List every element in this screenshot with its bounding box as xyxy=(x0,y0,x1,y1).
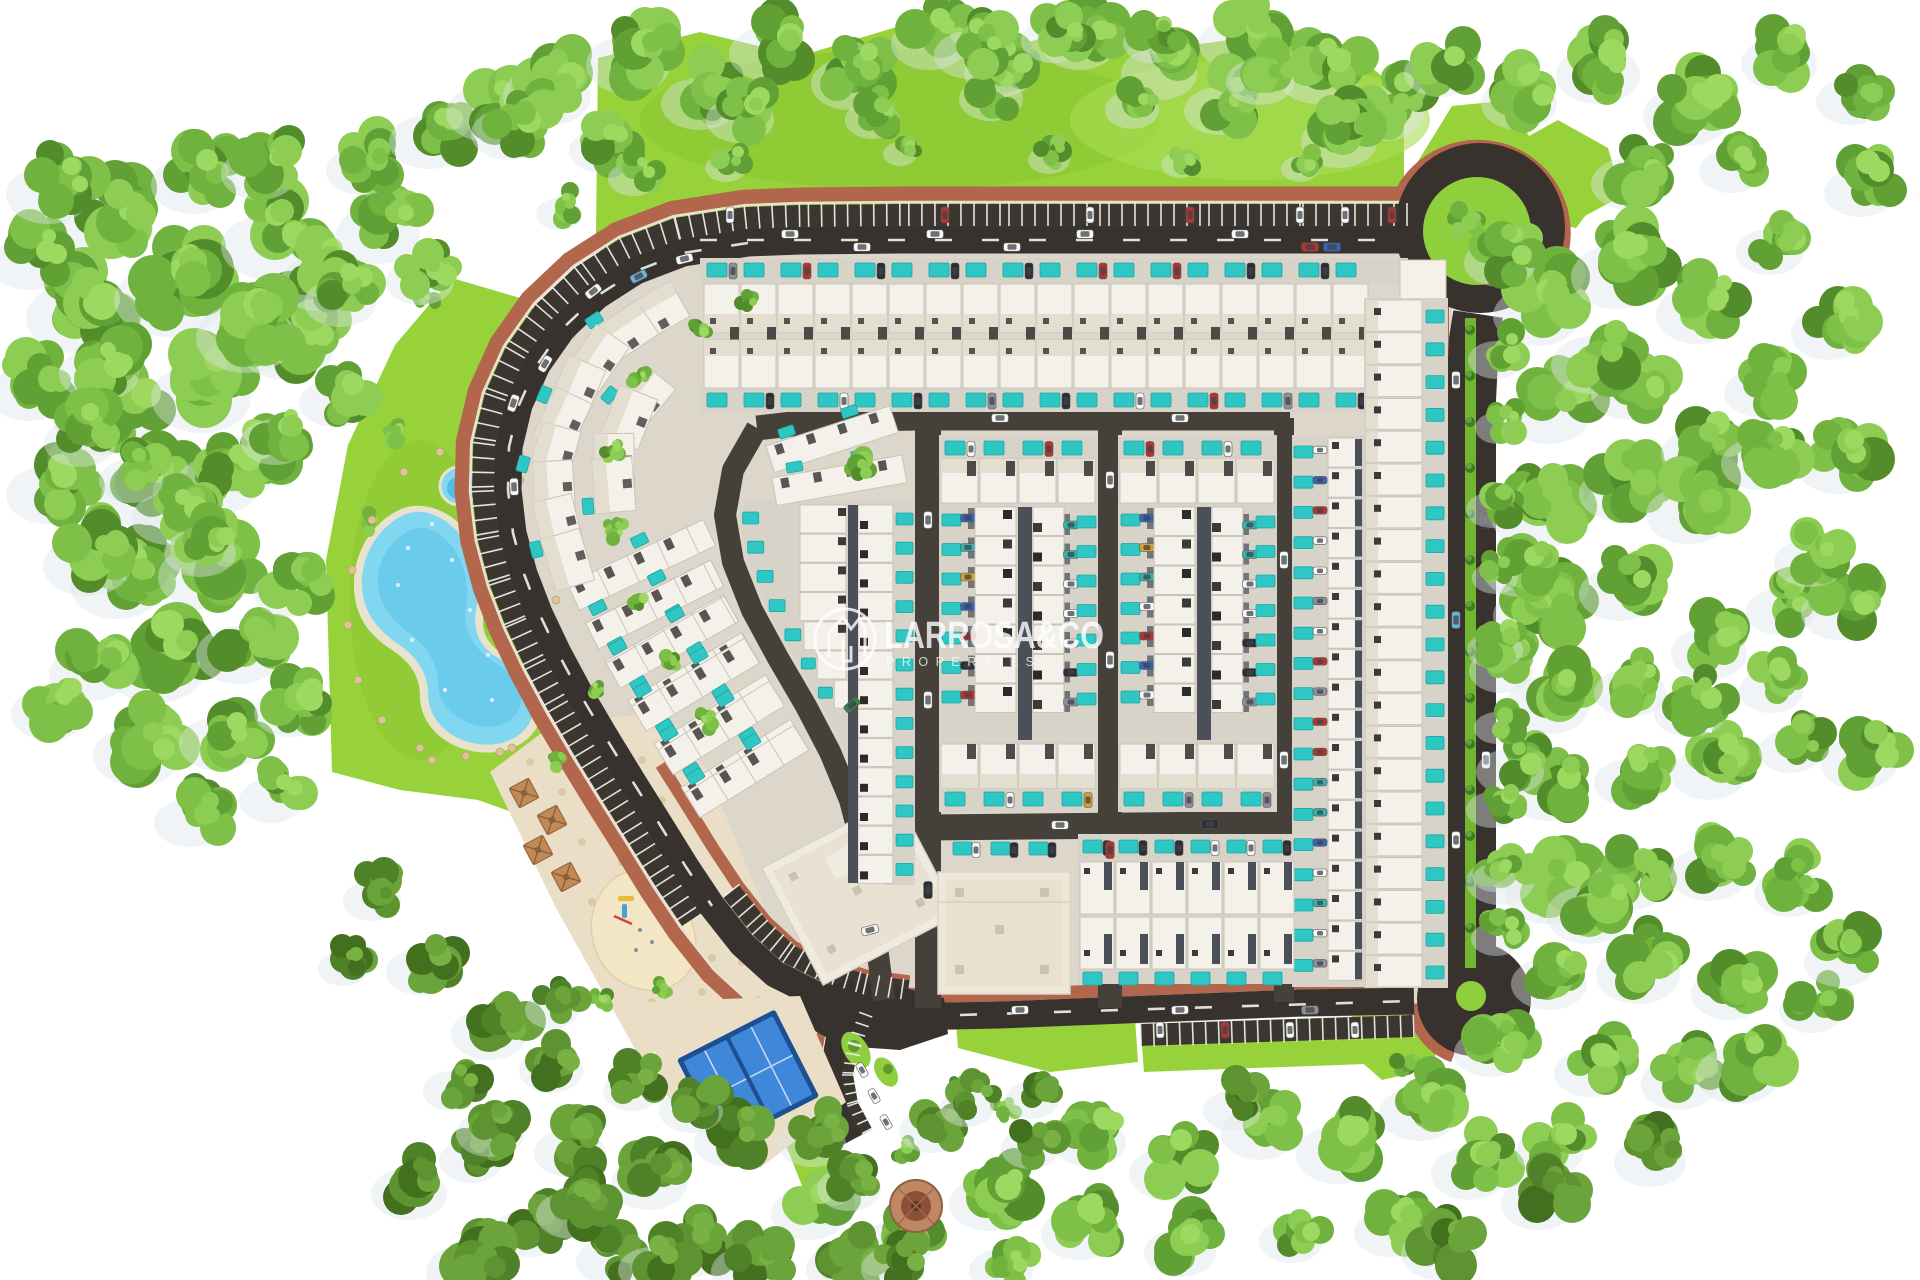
svg-text:LARROSA&CO: LARROSA&CO xyxy=(884,615,1104,657)
svg-text:PROPERTIES: PROPERTIES xyxy=(886,655,1041,669)
